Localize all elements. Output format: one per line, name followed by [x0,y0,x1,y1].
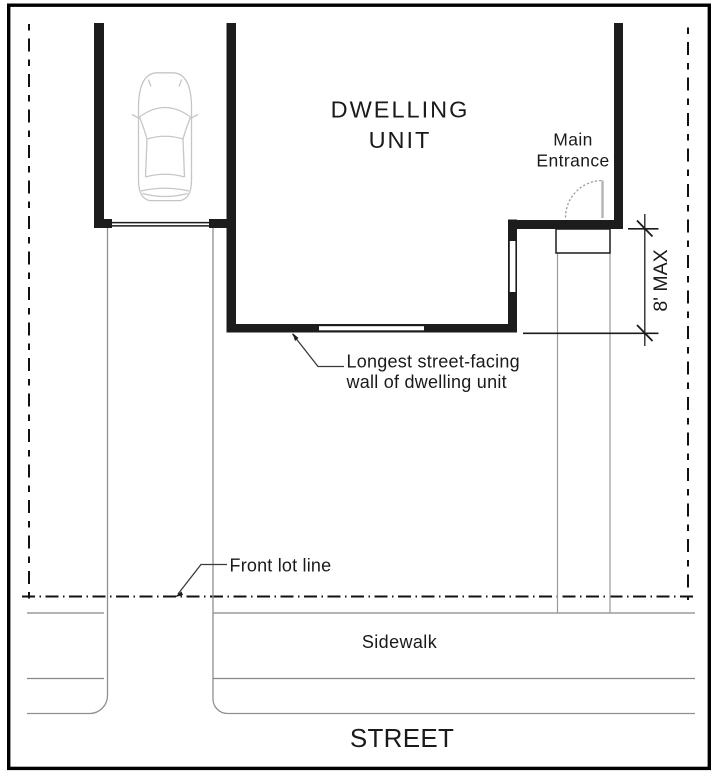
svg-text:Front lot line: Front lot line [230,556,332,576]
svg-text:UNIT: UNIT [369,127,432,153]
svg-text:wall of dwelling unit: wall of dwelling unit [346,372,507,392]
svg-text:Entrance: Entrance [536,151,609,171]
svg-text:DWELLING: DWELLING [331,97,470,123]
svg-text:Longest street-facing: Longest street-facing [347,352,520,372]
svg-text:8' MAX: 8' MAX [650,249,672,311]
svg-text:Main: Main [553,130,593,150]
svg-text:Sidewalk: Sidewalk [362,632,438,652]
svg-text:STREET: STREET [350,723,454,753]
